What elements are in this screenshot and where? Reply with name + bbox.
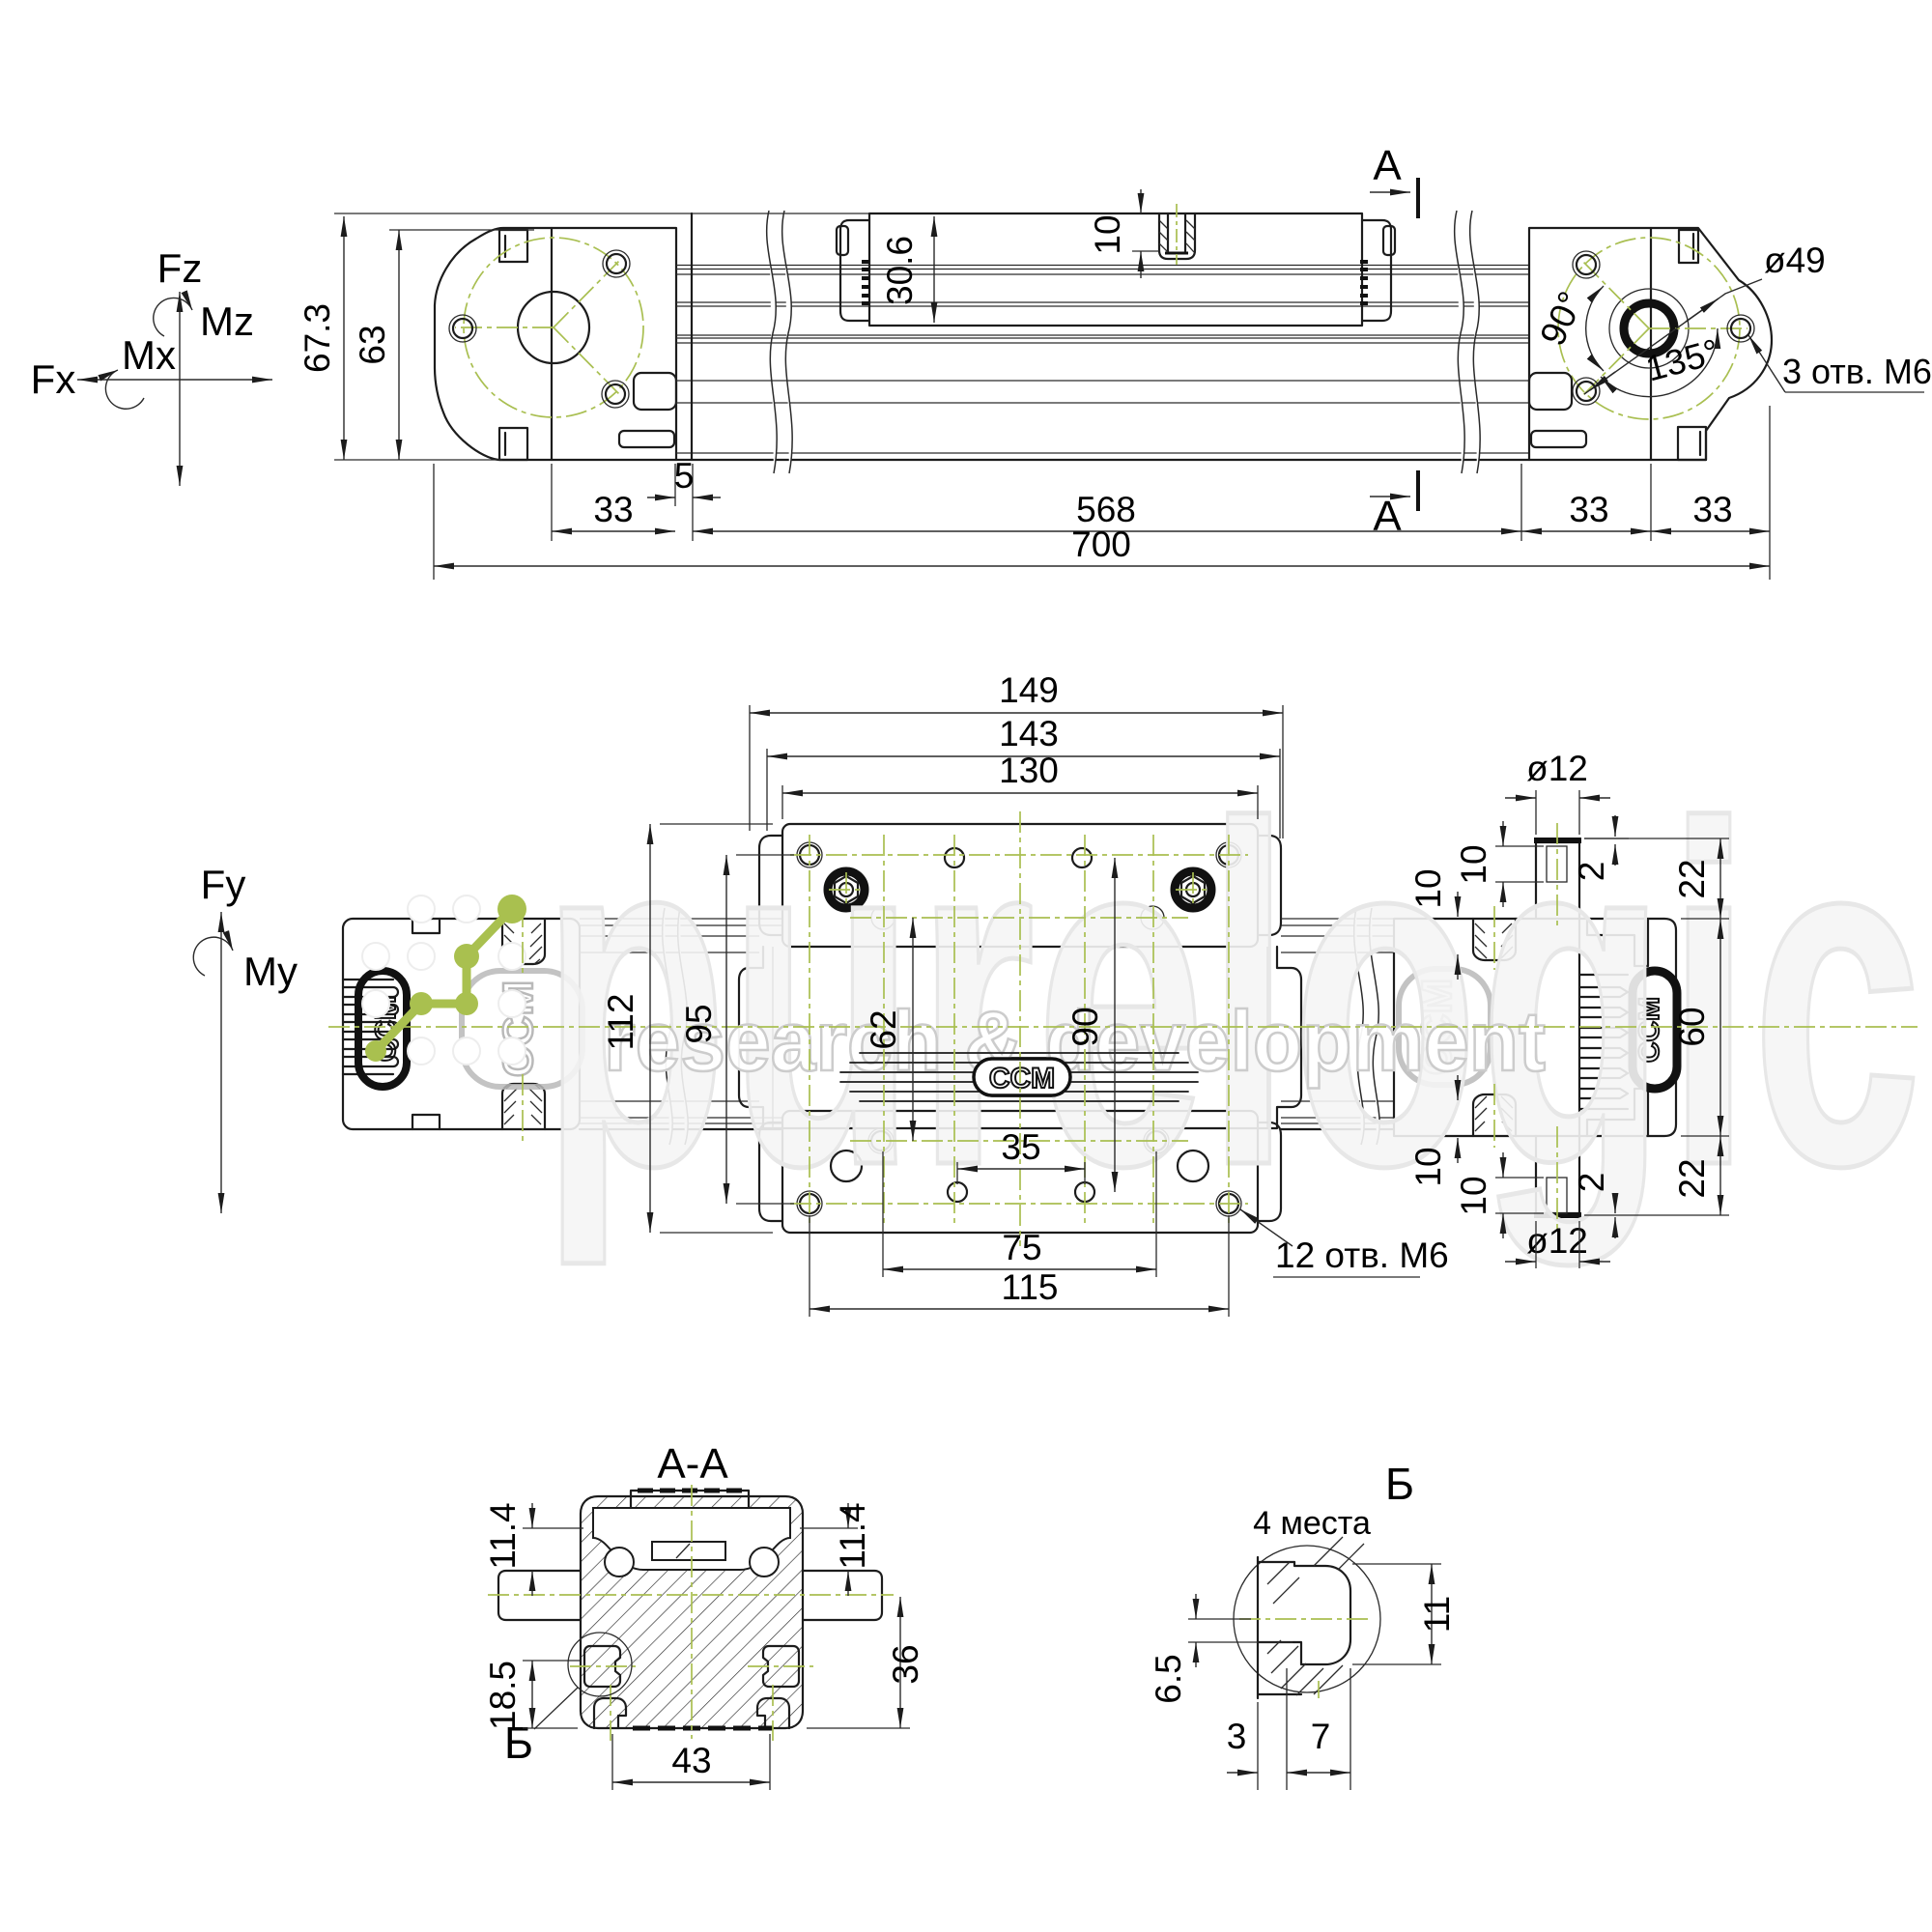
- svg-text:60: 60: [1672, 1007, 1712, 1046]
- svg-text:Fz: Fz: [157, 245, 203, 291]
- svg-text:115: 115: [1002, 1267, 1059, 1307]
- svg-text:90: 90: [1065, 1007, 1105, 1046]
- svg-text:95: 95: [679, 1004, 719, 1043]
- svg-text:ø49: ø49: [1764, 241, 1826, 280]
- svg-text:10: 10: [1408, 868, 1448, 908]
- svg-text:2: 2: [1572, 862, 1611, 882]
- svg-text:CCM: CCM: [989, 1063, 1055, 1094]
- svg-text:43: 43: [671, 1741, 711, 1780]
- svg-text:568: 568: [1076, 490, 1136, 529]
- svg-text:10: 10: [1408, 1147, 1448, 1186]
- svg-text:700: 700: [1071, 525, 1131, 564]
- svg-text:22: 22: [1672, 1158, 1712, 1198]
- svg-text:Б: Б: [1385, 1459, 1414, 1509]
- svg-text:33: 33: [1569, 490, 1608, 529]
- svg-text:36: 36: [886, 1644, 925, 1684]
- svg-text:149: 149: [999, 670, 1059, 710]
- svg-text:67.3: 67.3: [298, 303, 337, 373]
- svg-text:7: 7: [1311, 1717, 1331, 1756]
- svg-text:35: 35: [1001, 1127, 1040, 1167]
- svg-text:3: 3: [1227, 1717, 1247, 1756]
- svg-text:2: 2: [1572, 1173, 1611, 1193]
- svg-text:Fy: Fy: [201, 862, 246, 907]
- svg-text:30.6: 30.6: [880, 236, 920, 305]
- svg-text:А: А: [1373, 142, 1402, 189]
- svg-text:А-А: А-А: [657, 1440, 728, 1488]
- svg-text:143: 143: [999, 714, 1059, 753]
- svg-text:А: А: [1373, 493, 1402, 540]
- svg-text:Mz: Mz: [200, 298, 254, 344]
- svg-text:12 отв. М6: 12 отв. М6: [1275, 1236, 1449, 1275]
- svg-text:Mx: Mx: [122, 332, 176, 378]
- svg-text:3 отв. М6: 3 отв. М6: [1782, 352, 1932, 391]
- svg-text:6.5: 6.5: [1149, 1654, 1188, 1703]
- svg-text:63: 63: [353, 325, 392, 364]
- svg-text:4 места: 4 места: [1253, 1505, 1371, 1542]
- svg-text:10: 10: [1088, 214, 1127, 254]
- svg-text:ø12: ø12: [1526, 749, 1588, 788]
- svg-text:11: 11: [1417, 1596, 1457, 1633]
- svg-text:62: 62: [864, 1009, 903, 1049]
- svg-text:10: 10: [1454, 1176, 1493, 1215]
- svg-text:75: 75: [1002, 1228, 1041, 1267]
- svg-text:22: 22: [1672, 859, 1712, 898]
- svg-text:33: 33: [593, 490, 633, 529]
- svg-text:11.4: 11.4: [833, 1502, 872, 1569]
- svg-text:130: 130: [999, 751, 1059, 790]
- svg-text:112: 112: [601, 994, 640, 1051]
- svg-text:18.5: 18.5: [483, 1661, 523, 1730]
- svg-text:My: My: [243, 949, 298, 994]
- svg-text:33: 33: [1692, 490, 1732, 529]
- svg-text:10: 10: [1454, 844, 1493, 884]
- svg-text:11.4: 11.4: [483, 1502, 523, 1569]
- svg-text:5: 5: [674, 456, 695, 496]
- svg-text:Fx: Fx: [31, 356, 76, 402]
